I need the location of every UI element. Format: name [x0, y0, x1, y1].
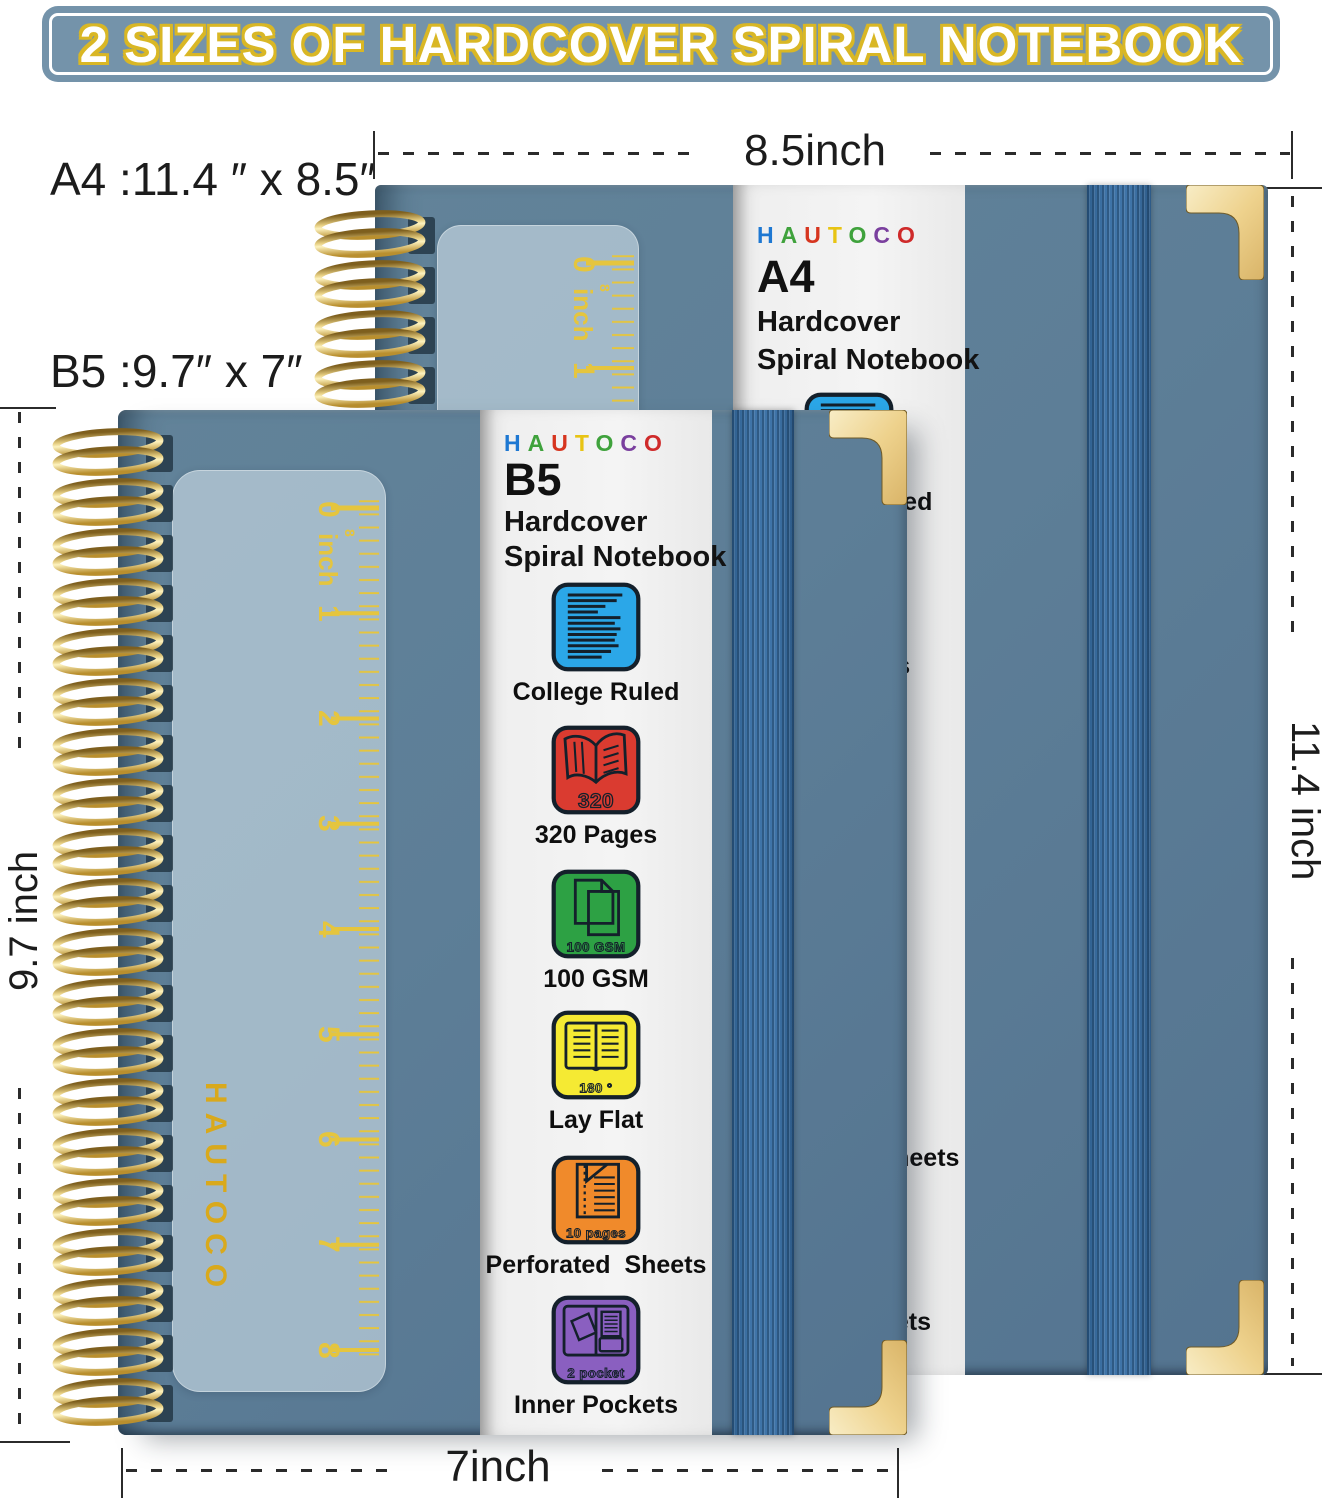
left-dim-label: 9.7 inch	[2, 756, 47, 1086]
brand-letter: O	[897, 222, 922, 248]
brand-letter: O	[849, 222, 874, 248]
svg-text:inch: inch	[313, 533, 343, 586]
right-dim-line-bottom	[1291, 958, 1294, 1366]
brand-letter: O	[596, 430, 621, 456]
svg-text:4: 4	[312, 921, 345, 938]
lay-flat-icon: 180 °	[548, 1008, 644, 1102]
a4-gold-corner-bottom-right	[1186, 1280, 1264, 1375]
a4-elastic-band	[1087, 185, 1151, 1375]
right-dim-bottom-tick	[1264, 1373, 1322, 1375]
b5-gold-corner-bottom-right	[829, 1340, 907, 1435]
left-dim-bottom-tick	[0, 1441, 70, 1443]
brand-letter: U	[551, 430, 575, 456]
product-infographic: 2 SIZES OF HARDCOVER SPIRAL NOTEBOOK A4 …	[0, 0, 1323, 1500]
left-dim-line-bottom	[18, 1088, 21, 1438]
a4-gold-corner-top-right	[1186, 185, 1264, 280]
top-dim-line-right	[930, 152, 1290, 155]
svg-text:0: 0	[312, 501, 345, 518]
b5-gold-corner-top-right	[829, 410, 907, 505]
svg-text:8: 8	[597, 284, 613, 292]
svg-text:320: 320	[578, 790, 614, 813]
brand-letter: H	[504, 430, 528, 456]
bottom-dim-line-left	[126, 1469, 394, 1472]
brand-letter: C	[620, 430, 644, 456]
svg-text:1: 1	[312, 605, 345, 622]
b5-elastic-band	[732, 410, 794, 1435]
svg-text:2 pocket: 2 pocket	[567, 1366, 624, 1381]
title-banner: 2 SIZES OF HARDCOVER SPIRAL NOTEBOOK	[42, 6, 1280, 82]
brand-letter: C	[873, 222, 897, 248]
b5-subtitle-1: Hardcover	[504, 506, 647, 539]
b5-label-strip: HAUTOCO B5 Hardcover Spiral Notebook Col…	[480, 410, 712, 1435]
brand-letter: A	[781, 222, 805, 248]
top-dim-right-tick	[1291, 131, 1293, 179]
page-title: 2 SIZES OF HARDCOVER SPIRAL NOTEBOOK	[80, 15, 1243, 74]
left-dim-line-top	[18, 412, 21, 752]
a4-subtitle-2: Spiral Notebook	[757, 344, 979, 377]
svg-text:0: 0	[567, 256, 600, 273]
bottom-dim-line-right	[602, 1469, 896, 1472]
top-dim-line-left	[378, 152, 700, 155]
brand-letter: T	[575, 430, 596, 456]
b5-spiral-binding	[50, 428, 180, 1433]
right-dim-top-tick	[1264, 187, 1322, 189]
top-dim-left-tick	[373, 131, 375, 179]
b5-size-title: B5	[504, 454, 562, 506]
brand-letter: T	[828, 222, 849, 248]
b5-cover-brand-vertical: HAUTOCO	[198, 1082, 232, 1332]
svg-text:8: 8	[312, 1342, 345, 1359]
a4-ruler-bookmark: 0 8 inch 1	[437, 225, 639, 419]
svg-text:100 GSM: 100 GSM	[567, 940, 626, 955]
b5-dimensions-text: B5 :9.7″ x 7″	[50, 344, 302, 398]
svg-text:180 °: 180 °	[579, 1081, 612, 1096]
right-dim-label: 11.4 inch	[1282, 648, 1323, 954]
bottom-dim-left-tick	[121, 1448, 123, 1498]
college-ruled-icon	[548, 580, 644, 674]
a4-size-title: A4	[757, 251, 815, 303]
brand-letter: O	[644, 430, 669, 456]
brand-letter: H	[757, 222, 781, 248]
a4-spiral-binding	[312, 210, 442, 415]
svg-text:3: 3	[312, 815, 345, 832]
bottom-dim-right-tick	[897, 1448, 899, 1498]
svg-text:7: 7	[312, 1236, 345, 1253]
a4-ruler-marks: 0 8 inch 1	[438, 226, 638, 418]
b5-brand-logo: HAUTOCO	[504, 430, 669, 457]
svg-text:2: 2	[312, 710, 345, 727]
svg-text:inch: inch	[568, 288, 598, 341]
a4-dimensions-text: A4 :11.4 ″ x 8.5″	[50, 152, 376, 206]
svg-text:10 pages: 10 pages	[566, 1226, 626, 1241]
perforated-icon: 10 pages	[548, 1153, 644, 1247]
a4-brand-logo: HAUTOCO	[757, 222, 922, 249]
brand-letter: U	[804, 222, 828, 248]
svg-text:6: 6	[312, 1131, 345, 1148]
gsm-icon: 100 GSM	[548, 867, 644, 961]
b5-subtitle-2: Spiral Notebook	[504, 541, 726, 574]
top-dim-label: 8.5inch	[700, 126, 930, 176]
svg-text:8: 8	[342, 529, 358, 537]
brand-letter: A	[528, 430, 552, 456]
svg-text:1: 1	[567, 362, 600, 379]
svg-text:5: 5	[312, 1026, 345, 1043]
a4-subtitle-1: Hardcover	[757, 306, 900, 339]
bottom-dim-label: 7inch	[396, 1442, 600, 1492]
right-dim-line-top	[1291, 196, 1294, 642]
pages-icon: 320	[548, 723, 644, 817]
pockets-icon: 2 pocket	[548, 1293, 644, 1387]
left-dim-top-tick	[0, 407, 56, 409]
